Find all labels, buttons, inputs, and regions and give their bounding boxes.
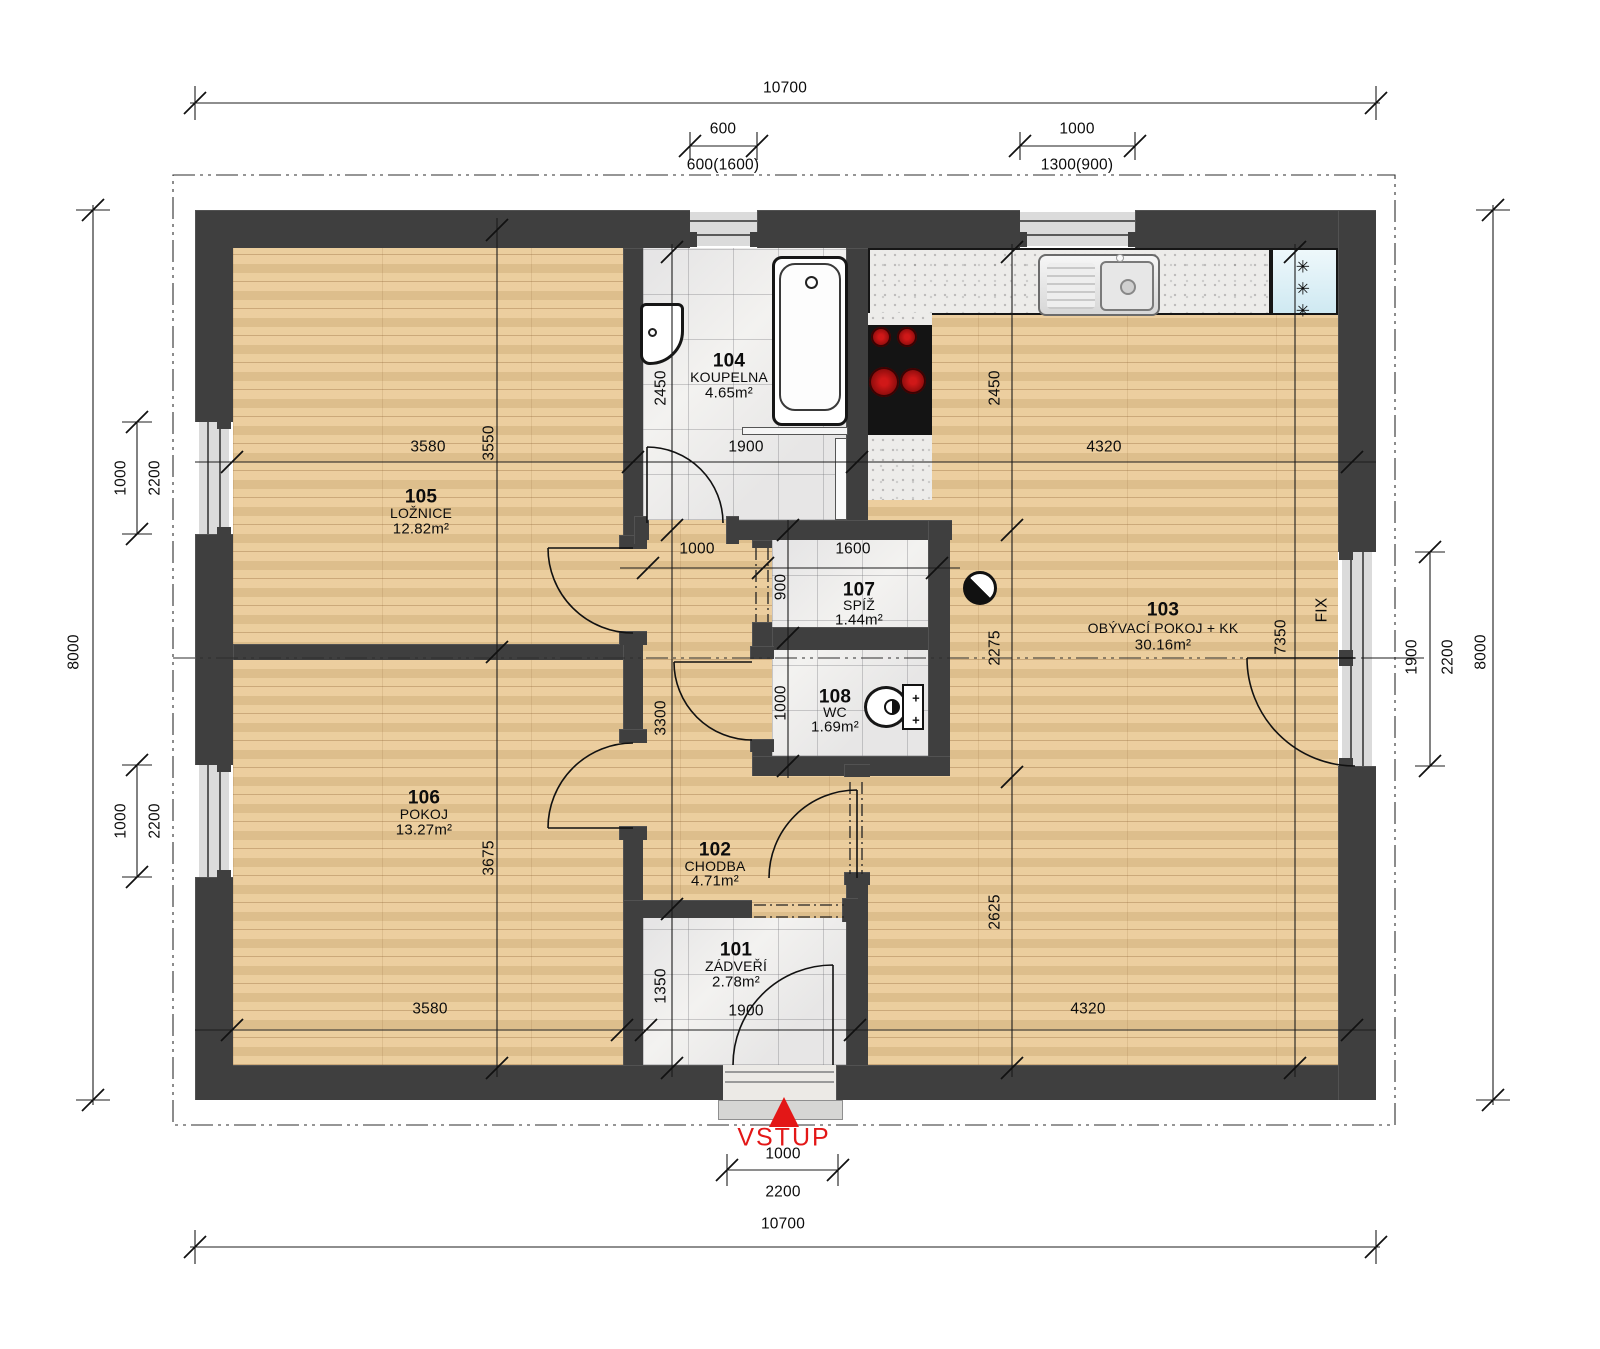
dim-wc-height: 1000 (773, 685, 789, 720)
room-104-number: 104 (713, 352, 745, 371)
dim-overall-top: 10700 (763, 80, 807, 96)
room-105-area: 12.82m² (393, 522, 449, 537)
room-101-name: ZÁDVEŘÍ (705, 959, 767, 973)
wall-exterior-top (757, 210, 1020, 248)
kitchen-counter-stove-column-top (868, 313, 932, 325)
wall-exterior-bottom (836, 1065, 1376, 1100)
sink-bowl (1100, 261, 1154, 311)
toilet-plus-icon: + (912, 714, 920, 727)
dim-living-low: 2625 (987, 894, 1003, 929)
dim-top-window2-alt: 1300(900) (1041, 157, 1113, 173)
wall-interior-hall-west (623, 633, 643, 743)
room-106-number: 106 (408, 789, 440, 808)
wall-exterior-left (195, 210, 233, 422)
wall-interior-pantry-east (928, 520, 950, 776)
window-bathroom (690, 212, 757, 246)
door-jamb (619, 729, 647, 743)
stove-burner-small-right (897, 327, 917, 347)
fridge-star-icon: ✳ (1296, 259, 1310, 276)
room-105-name: LOŽNICE (390, 506, 452, 520)
dim-chodba-width: 1000 (679, 541, 714, 557)
dim-kitchen-width-bottom: 4320 (1070, 1001, 1105, 1017)
fix-window-label: FIX (1314, 598, 1330, 623)
bathtub-drain (805, 276, 818, 289)
window-living-terrace (1342, 552, 1372, 766)
door-jamb (750, 646, 774, 659)
dim-left-window-bottom-w: 1000 (113, 803, 129, 838)
sink-drainboard (1047, 263, 1095, 309)
dim-zadveri-height: 1350 (653, 968, 669, 1003)
room-106-name: POKOJ (400, 807, 448, 821)
dim-left-window-bottom-total: 2200 (147, 803, 163, 838)
door-jamb (726, 516, 739, 544)
room-103-number: 103 (1147, 601, 1179, 620)
dim-top-window1-alt: 600(1600) (687, 157, 759, 173)
entrance-porch-slab (718, 1100, 843, 1120)
dim-loznice-width: 3580 (410, 439, 445, 455)
dim-kitchen-height: 2450 (987, 370, 1003, 405)
dim-kitchen-width: 4320 (1086, 439, 1121, 455)
room-104-name: KOUPELNA (690, 370, 768, 384)
dim-koupelna-height: 2450 (653, 370, 669, 405)
wall-interior-entry-north (623, 900, 752, 918)
room-107-area: 1.44m² (835, 613, 883, 628)
dim-living-height: 7350 (1273, 619, 1289, 654)
toilet-inner (884, 699, 900, 715)
stove-burner-large-right (900, 368, 926, 394)
sink-drain (1120, 279, 1136, 295)
stove-burner-large-left (869, 367, 899, 397)
room-103-name: OBÝVACÍ POKOJ + KK (1088, 621, 1239, 635)
stove-burner-small-left (871, 327, 891, 347)
dim-koupelna-width: 1900 (728, 439, 763, 455)
dim-right-window-total: 2200 (1440, 639, 1456, 674)
fridge-star-icon: ✳ (1296, 281, 1310, 298)
dim-right-window-w: 1900 (1404, 639, 1420, 674)
room-101-area: 2.78m² (712, 975, 760, 990)
room-102-name: CHODBA (684, 859, 745, 873)
dim-left-window-top-w: 1000 (113, 460, 129, 495)
room-105-number: 105 (405, 488, 437, 507)
dim-spiz-width: 1600 (835, 541, 870, 557)
dim-spiz-height: 900 (773, 574, 789, 600)
dim-loznice-height: 3550 (481, 425, 497, 460)
dim-chodba-height: 3300 (653, 700, 669, 735)
wall-exterior-right (1338, 210, 1376, 552)
towel-radiator (835, 438, 847, 520)
room-107-name: SPÍŽ (843, 598, 875, 612)
toilet-plus-icon: + (912, 692, 920, 705)
kitchen-counter-stove-column-bottom (868, 435, 932, 500)
room-106-area: 13.27m² (396, 823, 452, 838)
window-bedroom-left (199, 422, 229, 534)
window-room-left (199, 765, 229, 877)
room-103-area: 30.16m² (1135, 638, 1191, 653)
wall-interior-pantry-west (752, 540, 772, 548)
dim-left-window-top-total: 2200 (147, 460, 163, 495)
wall-interior-hall-west (623, 248, 643, 548)
dim-overall-bottom: 10700 (761, 1216, 805, 1232)
wall-exterior-left (195, 877, 233, 1100)
water-heater (963, 571, 997, 605)
dim-living-mid: 2275 (987, 630, 1003, 665)
room-108-name: WC (823, 705, 847, 719)
kitchen-sink (1038, 254, 1160, 316)
dim-top-window1: 600 (710, 121, 736, 137)
entrance-threshold (723, 1065, 836, 1100)
door-jamb (844, 764, 870, 777)
wall-interior-bath-south (728, 520, 952, 540)
room-104-area: 4.65m² (705, 386, 753, 401)
wall-exterior-right (1338, 766, 1376, 1100)
room-102-number: 102 (699, 841, 731, 860)
door-jamb (750, 739, 774, 752)
wall-exterior-bottom (195, 1065, 723, 1100)
door-jamb (619, 826, 647, 840)
sink-faucet (1116, 254, 1124, 262)
dim-overall-left: 8000 (66, 634, 82, 669)
door-jamb (634, 516, 647, 544)
fridge-star-icon: ✳ (1296, 303, 1310, 320)
floor-plan-canvas: 10700 600 600(1600) 1000 1300(900) 3580 … (0, 0, 1600, 1349)
wall-interior-pantry-wc (772, 627, 928, 650)
wall-interior-bedrooms (233, 644, 623, 660)
window-kitchen (1020, 212, 1135, 246)
door-jamb (844, 872, 870, 885)
dim-pokoj-height: 3675 (481, 840, 497, 875)
door-jamb (619, 631, 647, 645)
dim-entry-total: 2200 (765, 1184, 800, 1200)
room-102-area: 4.71m² (691, 874, 739, 889)
wall-exterior-left (195, 534, 233, 765)
wall-interior-hall-west (623, 828, 643, 1065)
dim-overall-right: 8000 (1473, 634, 1489, 669)
room-101-number: 101 (720, 941, 752, 960)
dim-entry-width: 1000 (765, 1146, 800, 1162)
dim-zadveri-width: 1900 (728, 1003, 763, 1019)
dim-top-window2: 1000 (1059, 121, 1094, 137)
wall-exterior-top (195, 210, 690, 248)
bathtub-shelf (742, 427, 848, 435)
washbasin-drain (648, 328, 657, 337)
wall-interior-bath-east (846, 248, 868, 520)
dim-pokoj-width: 3580 (412, 1001, 447, 1017)
door-jamb (842, 898, 858, 922)
room-108-area: 1.69m² (811, 720, 859, 735)
